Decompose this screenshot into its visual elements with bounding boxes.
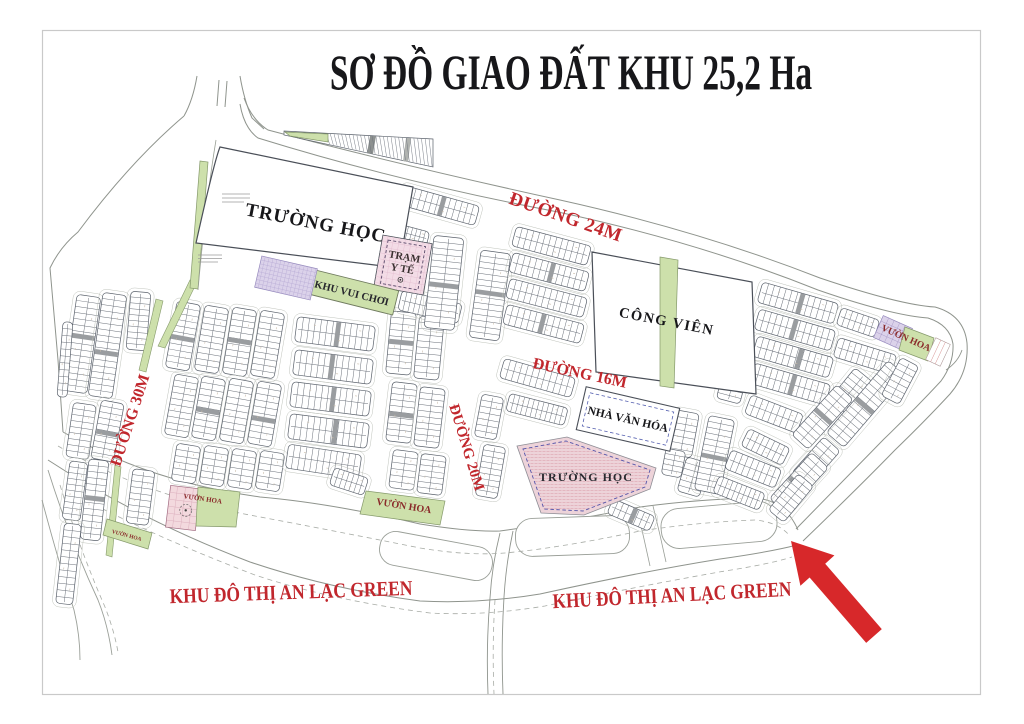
svg-text:TRƯỜNG HỌC: TRƯỜNG HỌC — [539, 470, 633, 484]
svg-text:SƠ ĐỒ GIAO ĐẤT KHU 25,2 Ha: SƠ ĐỒ GIAO ĐẤT KHU 25,2 Ha — [330, 44, 812, 100]
